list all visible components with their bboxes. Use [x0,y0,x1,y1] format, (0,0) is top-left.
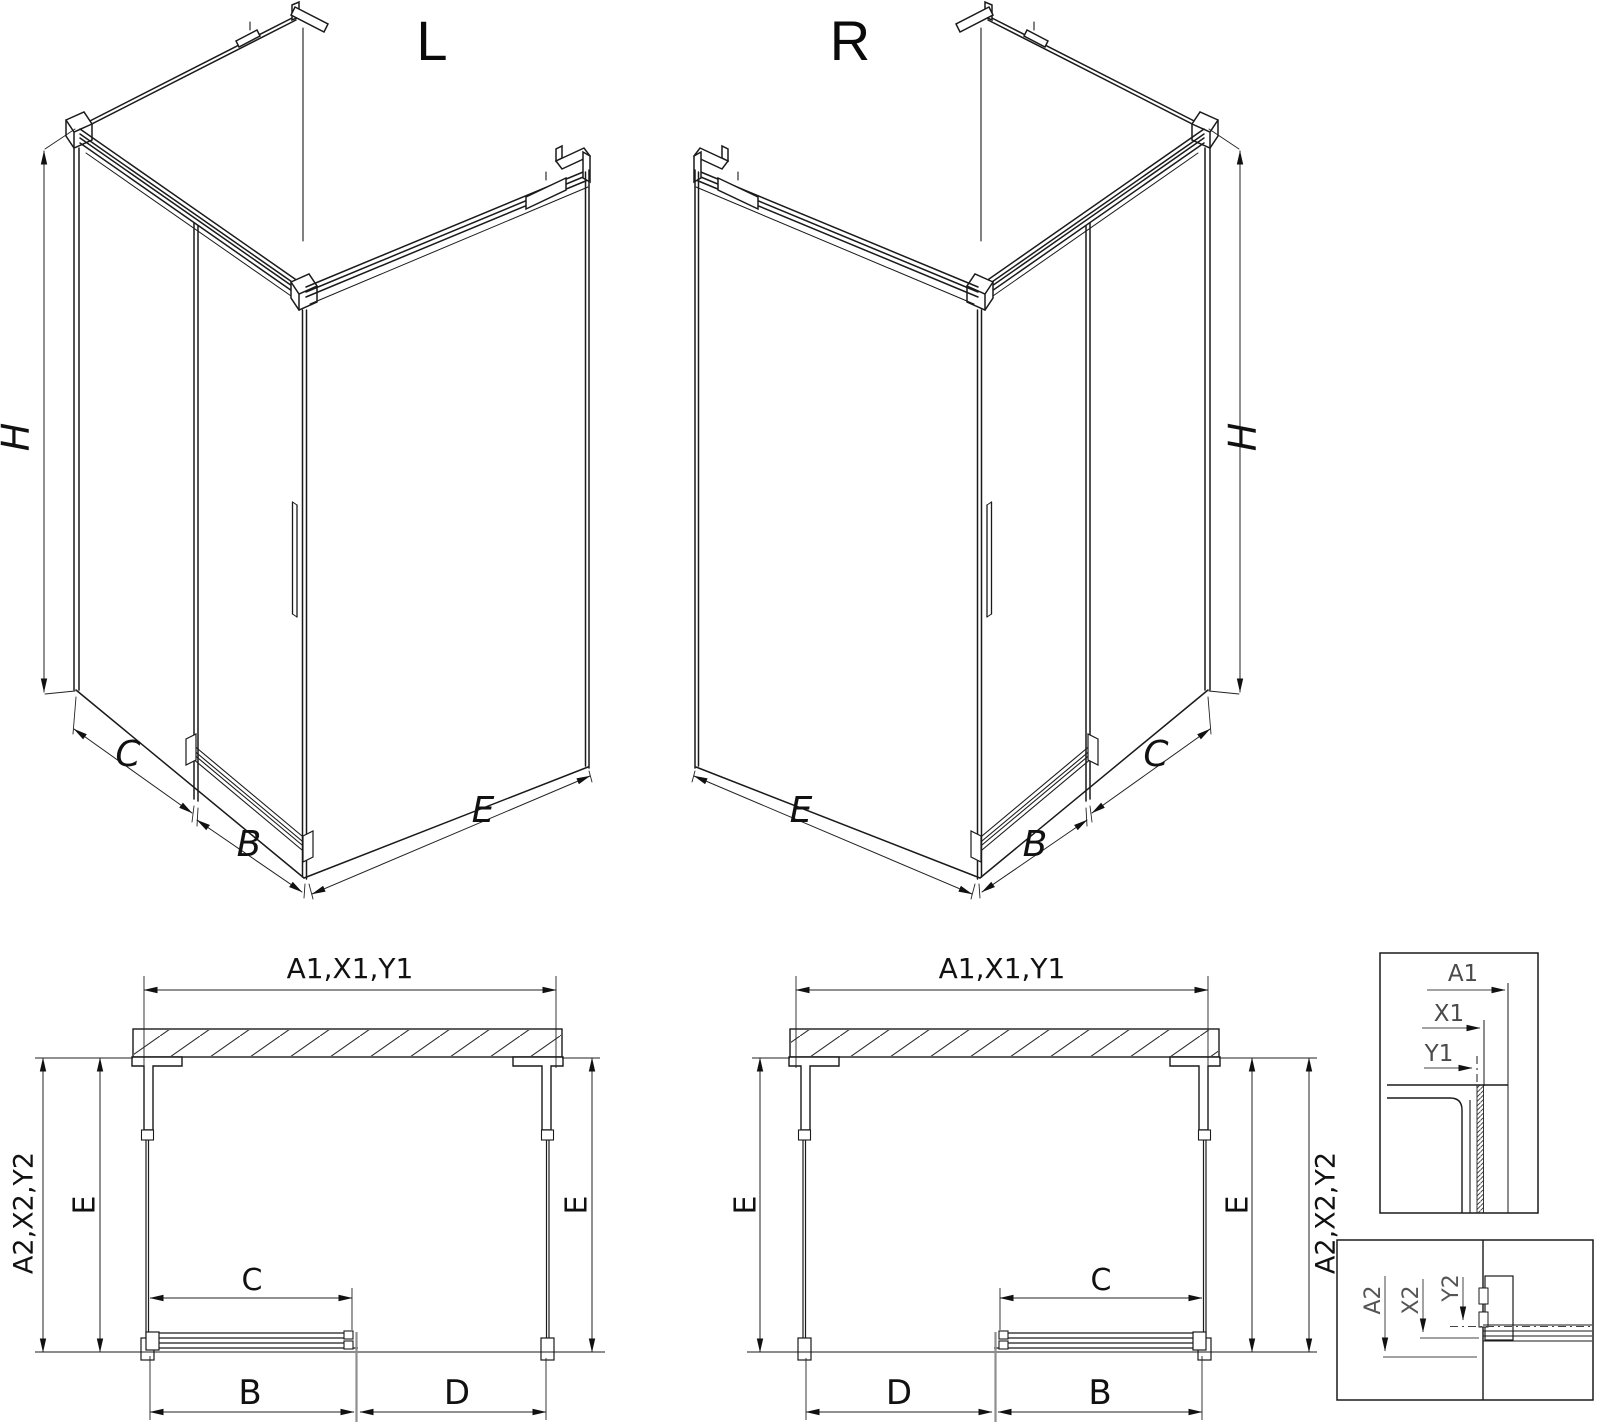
plan-view-right: A1,X1,Y1 A2,X2,Y2 E E C B D [729,952,1342,1422]
detail-view-width: A1 X1 Y1 [1380,953,1538,1213]
plan-right-dim-e-right-label: E [1221,1196,1256,1215]
wall-hatch-left-plan [134,1030,561,1056]
iso-left-title: L [416,9,447,72]
wall-hatch-right-plan [791,1030,1218,1056]
detail-width-border [1380,953,1538,1213]
plan-left-dim-b-label: B [238,1373,261,1413]
iso-right-title: R [830,9,870,72]
glass-section-hatch [1477,1085,1484,1213]
plan-left-dim-e-left-label: E [68,1196,103,1215]
detail-width-dim-x1-label: X1 [1434,1001,1464,1027]
plan-right-dim-c-label: C [1091,1263,1112,1298]
iso-left-dim-h-label: H [0,423,38,452]
iso-view-right: R H C B E [692,2,1265,899]
detail-width-dim-a1-label: A1 [1448,961,1478,987]
plan-view-left: A1,X1,Y1 A2,X2,Y2 E E C B D [9,952,606,1422]
shower-enclosure-technical-drawing: L H C B E R H C B E A1,X1,Y1 A2,X2,Y2 E … [0,0,1600,1423]
iso-right-dim-c-label: C [1143,734,1169,775]
detail-view-depth: A2 X2 Y2 [1337,1240,1593,1400]
drawing-sheet: L H C B E R H C B E A1,X1,Y1 A2,X2,Y2 E … [0,0,1600,1423]
plan-right-dim-b-label: B [1088,1373,1111,1413]
iso-right-dim-e-label: E [790,790,813,831]
plan-left-dim-e-right-label: E [560,1196,595,1215]
plan-left-dim-c-label: C [242,1263,263,1298]
plan-right-dim-d-label: D [886,1373,912,1413]
detail-depth-border [1337,1240,1593,1400]
detail-depth-dim-y2-label: Y2 [1439,1274,1464,1302]
detail-depth-dim-a2-label: A2 [1361,1285,1386,1314]
detail-depth-dim-x2-label: X2 [1399,1285,1424,1314]
iso-view-left: L H C B E [0,2,592,899]
plan-left-dim-d-label: D [444,1373,470,1413]
plan-right-dim-e-left-label: E [729,1196,764,1215]
iso-left-dim-e-label: E [472,790,495,831]
plan-left-dim-width-label: A1,X1,Y1 [287,952,414,985]
plan-right-dim-width-label: A1,X1,Y1 [939,952,1066,985]
detail-width-dim-y1-label: Y1 [1424,1041,1454,1067]
iso-right-dim-h-label: H [1221,423,1265,452]
plan-left-dim-depth-label: A2,X2,Y2 [9,1152,40,1274]
iso-right-dim-b-label: B [1023,824,1048,865]
iso-left-dim-b-label: B [237,824,262,865]
iso-left-dim-c-label: C [115,734,141,775]
